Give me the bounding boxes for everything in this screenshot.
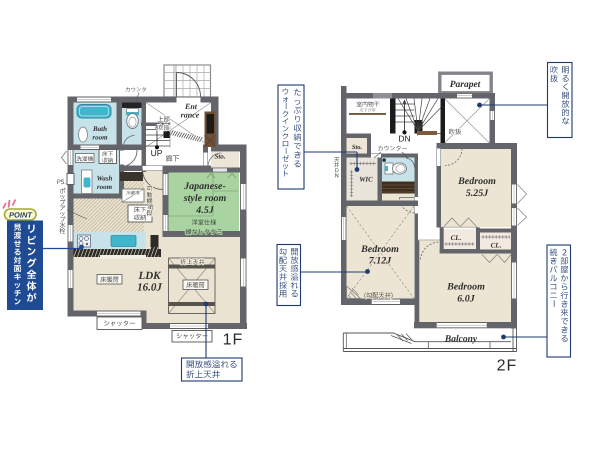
svg-text:Sto.: Sto. bbox=[214, 153, 225, 161]
svg-text:7.12J: 7.12J bbox=[369, 256, 393, 267]
svg-text:LDK: LDK bbox=[138, 270, 162, 282]
svg-text:CL.: CL. bbox=[491, 242, 502, 250]
svg-text:DN: DN bbox=[398, 134, 410, 144]
svg-text:Parapet: Parapet bbox=[450, 80, 481, 90]
svg-text:WIC: WIC bbox=[359, 176, 373, 184]
svg-text:Sto.: Sto. bbox=[352, 144, 363, 151]
svg-text:Bedroom: Bedroom bbox=[360, 244, 399, 255]
svg-text:2F: 2F bbox=[497, 358, 518, 375]
svg-text:room: room bbox=[92, 134, 108, 142]
svg-text:1F: 1F bbox=[223, 332, 244, 349]
svg-text:Wash: Wash bbox=[97, 175, 113, 183]
svg-text:rance: rance bbox=[181, 111, 200, 120]
svg-text:16.0J: 16.0J bbox=[137, 282, 162, 294]
svg-text:Japanese-: Japanese- bbox=[183, 181, 226, 192]
svg-text:Bedroom: Bedroom bbox=[446, 282, 485, 293]
svg-text:POINT: POINT bbox=[9, 211, 33, 220]
svg-text:5.25J: 5.25J bbox=[466, 188, 490, 199]
svg-text:Bath: Bath bbox=[92, 125, 107, 133]
svg-text:room: room bbox=[97, 183, 113, 191]
svg-text:Balcony: Balcony bbox=[444, 335, 478, 345]
svg-text:CL.: CL. bbox=[451, 234, 462, 242]
svg-text:UP: UP bbox=[151, 148, 163, 158]
svg-text:style room: style room bbox=[183, 193, 227, 204]
svg-text:Bedroom: Bedroom bbox=[457, 176, 496, 187]
svg-text:4.5J: 4.5J bbox=[195, 205, 215, 216]
svg-text:6.0J: 6.0J bbox=[457, 294, 476, 305]
